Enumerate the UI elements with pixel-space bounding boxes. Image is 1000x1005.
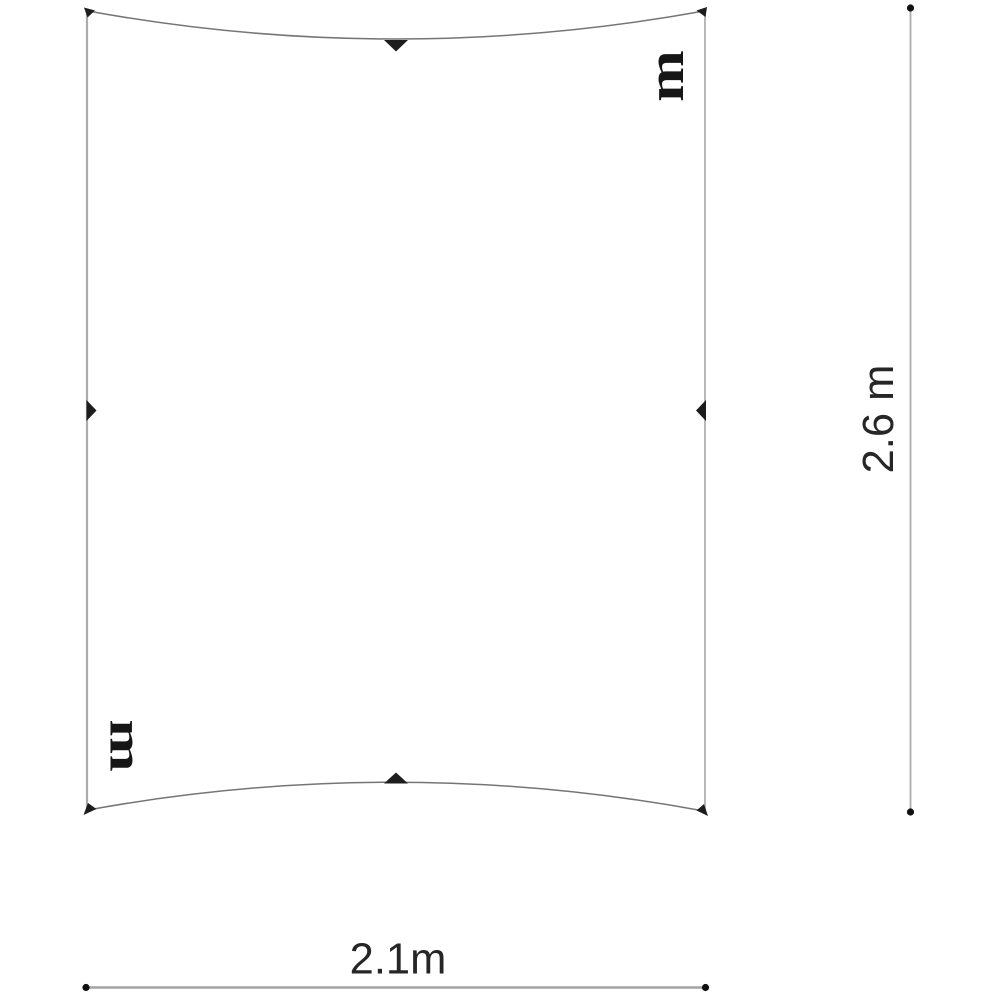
svg-text:m: m <box>638 50 695 102</box>
svg-text:2.6 m: 2.6 m <box>855 365 903 474</box>
svg-text:2.1m: 2.1m <box>350 936 447 984</box>
svg-text:m: m <box>100 719 151 772</box>
